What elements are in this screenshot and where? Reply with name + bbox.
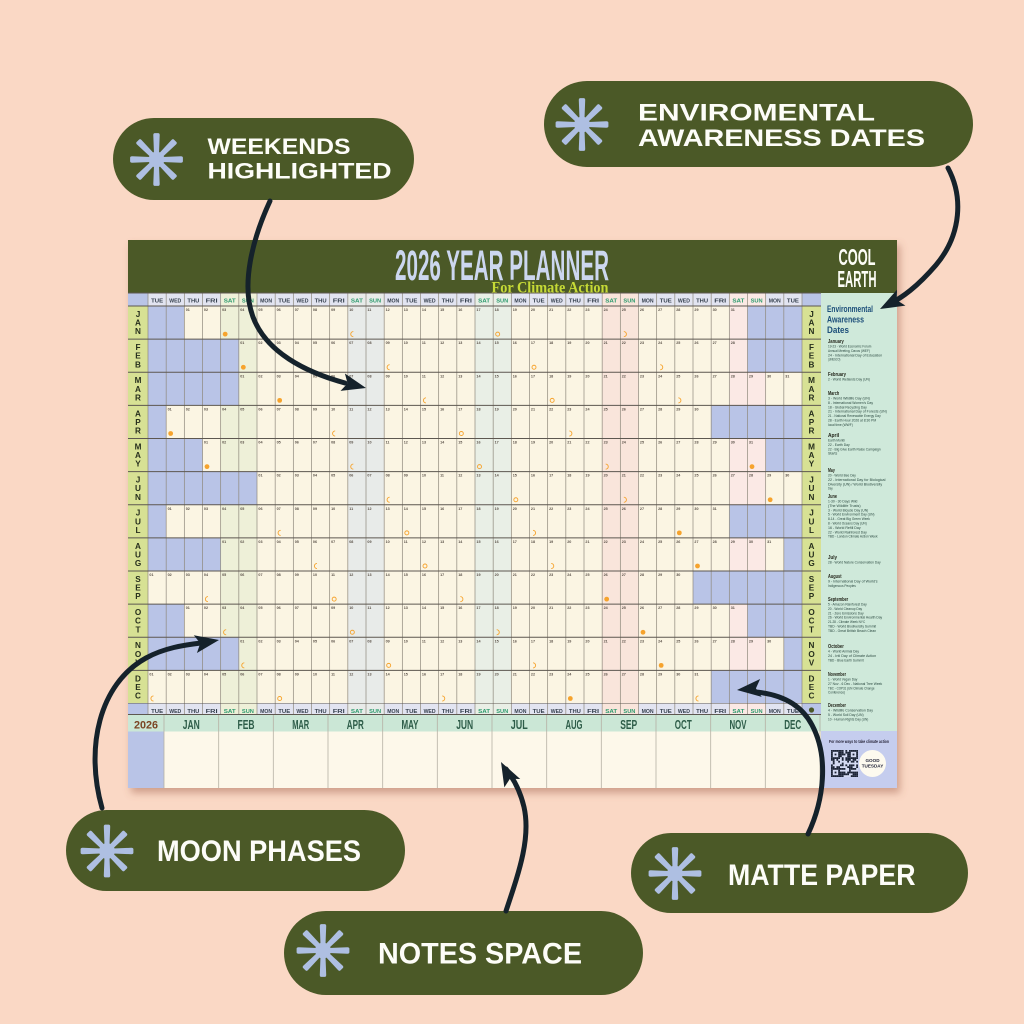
svg-text:07: 07 — [295, 606, 299, 610]
svg-text:22: 22 — [622, 639, 626, 643]
svg-text:30: 30 — [694, 507, 698, 511]
svg-text:22: 22 — [567, 308, 571, 312]
svg-text:13: 13 — [386, 507, 390, 511]
svg-text:21: 21 — [585, 540, 589, 544]
svg-text:07: 07 — [258, 672, 262, 676]
svg-text:29: 29 — [694, 308, 698, 312]
svg-text:SUN: SUN — [369, 299, 381, 305]
svg-text:31: 31 — [749, 441, 753, 445]
svg-text:09: 09 — [386, 639, 390, 643]
svg-text:07: 07 — [367, 474, 371, 478]
svg-text:APR: APR — [347, 717, 364, 732]
svg-text:29: 29 — [731, 540, 735, 544]
svg-text:19: 19 — [476, 672, 480, 676]
svg-text:16: 16 — [458, 308, 462, 312]
svg-text:16: 16 — [495, 540, 499, 544]
svg-text:13: 13 — [404, 606, 408, 610]
svg-text:23: 23 — [567, 507, 571, 511]
svg-text:SAT: SAT — [605, 299, 618, 305]
svg-text:TBD - World Biodiversity Summi: TBD - World Biodiversity Summit — [828, 625, 876, 629]
svg-text:25: 25 — [694, 474, 698, 478]
svg-text:11: 11 — [422, 374, 426, 378]
svg-text:01: 01 — [240, 639, 244, 643]
svg-text:18: 18 — [513, 441, 517, 445]
svg-text:06: 06 — [258, 407, 262, 411]
svg-text:20: 20 — [531, 308, 535, 312]
svg-text:12: 12 — [422, 540, 426, 544]
svg-text:29: 29 — [749, 639, 753, 643]
svg-text:N: N — [809, 493, 815, 502]
svg-text:03: 03 — [240, 441, 244, 445]
svg-text:18: 18 — [476, 407, 480, 411]
svg-text:THU: THU — [569, 299, 581, 305]
svg-text:MAY: MAY — [402, 717, 419, 732]
svg-text:06: 06 — [240, 573, 244, 577]
svg-text:13: 13 — [458, 341, 462, 345]
svg-text:WED: WED — [678, 299, 690, 305]
svg-text:01: 01 — [149, 573, 153, 577]
svg-text:THU: THU — [442, 299, 454, 305]
svg-text:07: 07 — [277, 407, 281, 411]
svg-text:05: 05 — [313, 341, 317, 345]
svg-text:01: 01 — [149, 672, 153, 676]
svg-text:22: 22 — [622, 374, 626, 378]
svg-text:28: 28 — [676, 606, 680, 610]
svg-text:06: 06 — [349, 474, 353, 478]
svg-text:WED: WED — [424, 299, 436, 305]
svg-text:11: 11 — [349, 407, 353, 411]
svg-text:18: 18 — [549, 341, 553, 345]
svg-text:12: 12 — [386, 308, 390, 312]
svg-text:12: 12 — [367, 507, 371, 511]
svg-text:28: 28 — [676, 308, 680, 312]
svg-text:11: 11 — [422, 639, 426, 643]
svg-text:12: 12 — [440, 374, 444, 378]
svg-text:21: 21 — [622, 474, 626, 478]
svg-text:EARTH: EARTH — [838, 266, 877, 292]
svg-text:30: 30 — [749, 540, 753, 544]
svg-text:19: 19 — [567, 639, 571, 643]
svg-text:25: 25 — [676, 374, 680, 378]
svg-text:09: 09 — [313, 407, 317, 411]
svg-text:23: 23 — [604, 441, 608, 445]
svg-text:25: 25 — [622, 606, 626, 610]
svg-text:03: 03 — [222, 606, 226, 610]
svg-text:11: 11 — [386, 441, 390, 445]
svg-text:FRI: FRI — [333, 299, 346, 305]
svg-text:30: 30 — [713, 606, 717, 610]
svg-text:30: 30 — [676, 672, 680, 676]
svg-text:01: 01 — [258, 474, 262, 478]
svg-text:19-23 - World Economic Forum: 19-23 - World Economic Forum — [828, 345, 871, 349]
svg-text:17: 17 — [458, 507, 462, 511]
svg-text:16: 16 — [513, 639, 517, 643]
svg-text:20: 20 — [567, 540, 571, 544]
svg-text:FRI: FRI — [460, 299, 473, 305]
svg-text:FRI: FRI — [206, 299, 219, 305]
svg-text:01: 01 — [204, 441, 208, 445]
svg-text:26: 26 — [694, 374, 698, 378]
svg-text:23: 23 — [658, 474, 662, 478]
svg-text:25: 25 — [622, 308, 626, 312]
svg-text:07: 07 — [349, 341, 353, 345]
svg-text:11: 11 — [404, 540, 408, 544]
svg-text:13: 13 — [404, 308, 408, 312]
svg-text:30: 30 — [767, 639, 771, 643]
svg-text:02: 02 — [258, 639, 262, 643]
svg-text:19: 19 — [531, 441, 535, 445]
svg-text:SUN: SUN — [751, 299, 763, 305]
svg-text:21 - Zero Emissions Day: 21 - Zero Emissions Day — [828, 611, 864, 615]
svg-text:21: 21 — [604, 374, 608, 378]
svg-text:06: 06 — [313, 540, 317, 544]
svg-text:20: 20 — [495, 672, 499, 676]
svg-text:R: R — [135, 427, 141, 436]
svg-text:13: 13 — [422, 441, 426, 445]
svg-text:WED: WED — [551, 299, 563, 305]
svg-text:05: 05 — [295, 540, 299, 544]
svg-text:10: 10 — [422, 474, 426, 478]
svg-text:FEB: FEB — [238, 717, 255, 732]
svg-text:21: 21 — [531, 507, 535, 511]
svg-text:SAT: SAT — [351, 299, 364, 305]
svg-text:15: 15 — [495, 639, 499, 643]
svg-text:22: 22 — [549, 507, 553, 511]
svg-text:28: 28 — [640, 573, 644, 577]
svg-text:29: 29 — [749, 374, 753, 378]
svg-text:27: 27 — [713, 639, 717, 643]
svg-text:01: 01 — [168, 507, 172, 511]
svg-text:28: 28 — [658, 507, 662, 511]
svg-text:R: R — [809, 427, 815, 436]
svg-text:(UNESCO): (UNESCO) — [828, 358, 840, 362]
svg-text:22: 22 — [640, 474, 644, 478]
svg-text:18: 18 — [549, 639, 553, 643]
svg-text:19: 19 — [567, 374, 571, 378]
svg-text:08: 08 — [313, 308, 317, 312]
svg-text:03: 03 — [222, 308, 226, 312]
svg-text:30: 30 — [785, 474, 789, 478]
svg-text:26: 26 — [604, 573, 608, 577]
svg-text:21: 21 — [604, 639, 608, 643]
svg-text:28: 28 — [640, 672, 644, 676]
svg-text:SUN: SUN — [496, 299, 508, 305]
svg-text:08: 08 — [277, 573, 281, 577]
svg-text:V: V — [809, 658, 815, 667]
svg-text:19: 19 — [513, 606, 517, 610]
svg-text:MAR: MAR — [292, 717, 309, 732]
svg-text:15: 15 — [476, 540, 480, 544]
svg-text:26: 26 — [658, 441, 662, 445]
svg-text:03: 03 — [277, 639, 281, 643]
svg-text:JUL: JUL — [511, 717, 528, 732]
svg-text:17: 17 — [549, 474, 553, 478]
svg-text:For more ways to take climate: For more ways to take climate action — [829, 739, 889, 744]
svg-text:18: 18 — [458, 573, 462, 577]
svg-text:TUE: TUE — [151, 299, 163, 305]
svg-text:Earth Month: Earth Month — [828, 439, 845, 443]
svg-text:25: 25 — [585, 672, 589, 676]
svg-text:T: T — [135, 625, 140, 634]
svg-text:31: 31 — [785, 374, 789, 378]
svg-text:23: 23 — [640, 374, 644, 378]
svg-text:26: 26 — [622, 507, 626, 511]
svg-text:05: 05 — [313, 639, 317, 643]
svg-text:17: 17 — [513, 540, 517, 544]
svg-text:22 - Earth Day: 22 - Earth Day — [828, 443, 850, 447]
svg-text:12: 12 — [440, 639, 444, 643]
svg-text:08: 08 — [331, 441, 335, 445]
svg-text:12: 12 — [404, 441, 408, 445]
svg-text:05: 05 — [240, 507, 244, 511]
svg-text:02: 02 — [186, 507, 190, 511]
svg-text:22 - International Day for Bio: 22 - International Day for Biological — [828, 478, 886, 482]
svg-text:09: 09 — [386, 374, 390, 378]
svg-text:27: 27 — [731, 474, 735, 478]
svg-text:31: 31 — [731, 606, 735, 610]
svg-text:L: L — [135, 526, 140, 535]
svg-text:13: 13 — [386, 407, 390, 411]
svg-text:26 - World Environmental Healt: 26 - World Environmental Health Day — [828, 616, 882, 620]
svg-text:12: 12 — [349, 573, 353, 577]
svg-text:02: 02 — [168, 672, 172, 676]
svg-text:9 - International Day of World: 9 - International Day of World’s — [828, 580, 878, 584]
svg-text:N: N — [135, 327, 141, 336]
svg-text:Conference): Conference) — [828, 691, 845, 695]
svg-text:08: 08 — [367, 341, 371, 345]
svg-text:SUN: SUN — [623, 299, 635, 305]
svg-text:31: 31 — [713, 507, 717, 511]
svg-text:08: 08 — [367, 374, 371, 378]
svg-text:4 - Wildlife Conservation Day: 4 - Wildlife Conservation Day — [828, 709, 873, 713]
svg-text:TBD - Blue Earth Summit: TBD - Blue Earth Summit — [828, 658, 864, 662]
svg-text:27: 27 — [713, 341, 717, 345]
svg-text:8 - World Oceans Day (UN): 8 - World Oceans Day (UN) — [828, 522, 867, 526]
svg-text:16: 16 — [513, 374, 517, 378]
svg-text:MON: MON — [642, 299, 654, 305]
svg-text:17: 17 — [495, 441, 499, 445]
svg-text:12: 12 — [349, 672, 353, 676]
svg-text:Day: Day — [828, 487, 833, 491]
svg-text:29: 29 — [658, 672, 662, 676]
svg-text:13: 13 — [367, 573, 371, 577]
svg-text:06: 06 — [277, 308, 281, 312]
svg-text:P: P — [809, 592, 815, 601]
svg-text:06: 06 — [277, 606, 281, 610]
svg-text:28 - World Nature Conservation: 28 - World Nature Conservation Day — [828, 561, 881, 565]
svg-text:TBD - London Climate Action We: TBD - London Climate Action Week — [828, 535, 878, 539]
svg-text:09: 09 — [331, 606, 335, 610]
svg-text:20: 20 — [585, 341, 589, 345]
svg-text:5 - Amazon Rainforest Day: 5 - Amazon Rainforest Day — [828, 603, 867, 607]
svg-text:1-30 - 30 Days Wild: 1-30 - 30 Days Wild — [828, 500, 857, 504]
svg-text:13: 13 — [440, 540, 444, 544]
svg-text:18: 18 — [458, 672, 462, 676]
svg-text:05: 05 — [222, 573, 226, 577]
svg-text:MOON PHASES: MOON PHASES — [157, 835, 361, 868]
svg-text:TUE: TUE — [278, 299, 290, 305]
svg-text:13: 13 — [367, 672, 371, 676]
svg-text:8-14 - Great Big Green Week: 8-14 - Great Big Green Week — [828, 517, 870, 521]
svg-text:05: 05 — [331, 474, 335, 478]
svg-text:31: 31 — [694, 672, 698, 676]
svg-text:05: 05 — [222, 672, 226, 676]
svg-text:MON: MON — [260, 299, 272, 305]
svg-text:29: 29 — [713, 441, 717, 445]
svg-text:JUN: JUN — [456, 717, 473, 732]
svg-text:06: 06 — [331, 341, 335, 345]
svg-text:17: 17 — [531, 341, 535, 345]
svg-text:02: 02 — [258, 341, 262, 345]
svg-text:21 - International Day of Fore: 21 - International Day of Forests (UN) — [828, 410, 887, 414]
svg-text:18: 18 — [495, 308, 499, 312]
svg-text:01: 01 — [186, 308, 190, 312]
svg-text:07: 07 — [331, 540, 335, 544]
svg-text:3 - World Bicycle Day (UN): 3 - World Bicycle Day (UN) — [828, 508, 868, 512]
svg-text:SAT: SAT — [732, 299, 745, 305]
svg-text:19: 19 — [513, 308, 517, 312]
svg-text:22: 22 — [531, 573, 535, 577]
svg-text:16: 16 — [476, 441, 480, 445]
svg-text:MON: MON — [387, 299, 399, 305]
svg-text:16: 16 — [458, 606, 462, 610]
svg-text:05: 05 — [258, 308, 262, 312]
svg-text:18: 18 — [495, 606, 499, 610]
svg-text:10: 10 — [313, 573, 317, 577]
svg-text:R: R — [809, 393, 815, 402]
svg-text:THU: THU — [187, 299, 199, 305]
svg-text:10: 10 — [404, 341, 408, 345]
svg-text:15: 15 — [422, 407, 426, 411]
svg-text:10: 10 — [404, 374, 408, 378]
svg-text:01: 01 — [240, 341, 244, 345]
svg-text:L: L — [809, 526, 814, 535]
svg-text:30: 30 — [767, 374, 771, 378]
svg-text:19: 19 — [495, 507, 499, 511]
svg-text:15: 15 — [422, 507, 426, 511]
svg-text:27: 27 — [694, 540, 698, 544]
svg-text:13: 13 — [458, 374, 462, 378]
svg-text:10: 10 — [349, 308, 353, 312]
svg-text:28: 28 — [694, 441, 698, 445]
svg-text:24 - International Day of Educ: 24 - International Day of Education — [828, 353, 882, 357]
svg-text:03: 03 — [186, 573, 190, 577]
svg-text:29: 29 — [658, 573, 662, 577]
svg-text:02: 02 — [258, 374, 262, 378]
svg-text:17: 17 — [531, 374, 535, 378]
svg-text:TBD - Great British Beach Clea: TBD - Great British Beach Clean — [828, 629, 876, 633]
svg-text:25: 25 — [604, 407, 608, 411]
svg-text:26: 26 — [694, 341, 698, 345]
svg-text:19: 19 — [585, 474, 589, 478]
svg-text:21-28 - Climate Week NYC: 21-28 - Climate Week NYC — [828, 620, 866, 624]
svg-text:28: 28 — [658, 407, 662, 411]
svg-text:08: 08 — [349, 540, 353, 544]
svg-text:20: 20 — [513, 507, 517, 511]
svg-text:17: 17 — [440, 573, 444, 577]
svg-text:18 - Global Recycling Day: 18 - Global Recycling Day — [828, 405, 867, 409]
svg-text:27: 27 — [658, 308, 662, 312]
svg-text:10: 10 — [404, 639, 408, 643]
svg-text:28: 28 — [749, 474, 753, 478]
svg-text:TUE: TUE — [533, 299, 545, 305]
svg-text:09: 09 — [404, 474, 408, 478]
svg-text:27: 27 — [622, 573, 626, 577]
svg-text:05: 05 — [258, 606, 262, 610]
svg-text:02: 02 — [277, 474, 281, 478]
svg-text:21: 21 — [513, 573, 517, 577]
svg-text:21: 21 — [604, 341, 608, 345]
svg-text:30: 30 — [731, 441, 735, 445]
svg-text:02: 02 — [186, 407, 190, 411]
svg-text:30: 30 — [694, 407, 698, 411]
svg-text:23: 23 — [640, 341, 644, 345]
svg-text:10: 10 — [367, 441, 371, 445]
svg-text:17: 17 — [440, 672, 444, 676]
svg-text:15: 15 — [458, 441, 462, 445]
svg-text:07: 07 — [313, 441, 317, 445]
svg-text:09: 09 — [295, 573, 299, 577]
svg-text:20 - World Cleanup Day: 20 - World Cleanup Day — [828, 607, 862, 611]
svg-text:P: P — [135, 592, 141, 601]
svg-text:09: 09 — [313, 507, 317, 511]
svg-text:13: 13 — [476, 474, 480, 478]
svg-text:Y: Y — [135, 460, 141, 469]
svg-text:15: 15 — [404, 573, 408, 577]
svg-text:29: 29 — [767, 474, 771, 478]
svg-text:B: B — [809, 360, 815, 369]
svg-text:21: 21 — [567, 441, 571, 445]
svg-text:C: C — [809, 692, 815, 701]
svg-text:25: 25 — [604, 507, 608, 511]
svg-text:26: 26 — [713, 474, 717, 478]
svg-text:15: 15 — [495, 374, 499, 378]
svg-text:TBC - COP31 (UN Climate Change: TBC - COP31 (UN Climate Change — [828, 686, 875, 690]
svg-text:07: 07 — [258, 573, 262, 577]
svg-text:09: 09 — [367, 540, 371, 544]
svg-text:19: 19 — [567, 341, 571, 345]
svg-text:02: 02 — [222, 441, 226, 445]
svg-text:25: 25 — [585, 573, 589, 577]
svg-text:JAN: JAN — [183, 717, 200, 732]
svg-text:21: 21 — [549, 308, 553, 312]
svg-text:15: 15 — [513, 474, 517, 478]
svg-text:18: 18 — [476, 507, 480, 511]
svg-text:05: 05 — [277, 441, 281, 445]
svg-text:09: 09 — [386, 341, 390, 345]
svg-text:12: 12 — [367, 407, 371, 411]
svg-text:07: 07 — [349, 639, 353, 643]
svg-text:TUESDAY: TUESDAY — [862, 764, 884, 769]
svg-text:local time (WWF): local time (WWF) — [828, 423, 853, 427]
svg-text:20: 20 — [549, 441, 553, 445]
svg-text:Indigenous Peoples: Indigenous Peoples — [828, 584, 856, 588]
svg-text:Starts: Starts — [828, 452, 838, 456]
svg-text:23: 23 — [549, 573, 553, 577]
svg-text:27: 27 — [658, 606, 662, 610]
svg-text:N: N — [135, 493, 141, 502]
svg-text:25: 25 — [640, 441, 644, 445]
svg-text:24 - Intl Day of Climate Actio: 24 - Intl Day of Climate Action — [828, 654, 876, 658]
svg-text:TUE: TUE — [787, 299, 799, 305]
svg-text:02: 02 — [204, 308, 208, 312]
svg-text:13: 13 — [458, 639, 462, 643]
svg-text:08: 08 — [386, 474, 390, 478]
svg-text:22 - Big Give Earth Raise Camp: 22 - Big Give Earth Raise Campaign — [828, 447, 881, 451]
svg-text:11: 11 — [331, 573, 335, 577]
svg-text:16: 16 — [440, 507, 444, 511]
svg-text:G: G — [808, 559, 814, 568]
